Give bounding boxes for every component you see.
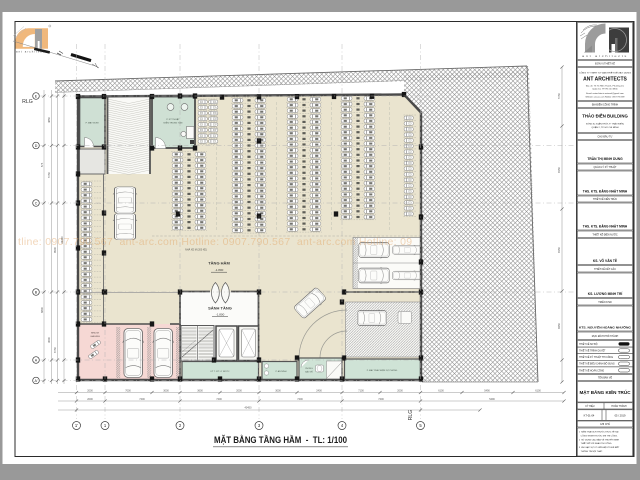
svg-text:2000: 2000 — [87, 389, 93, 392]
svg-text:TẦNG HẦM: TẦNG HẦM — [208, 261, 230, 266]
svg-text:TRẦN THỊ MINH DUNG: TRẦN THỊ MINH DUNG — [587, 157, 623, 161]
svg-text:RLG: RLG — [408, 410, 414, 421]
svg-text:P. MÁY PHÁT ĐIỆN DỰ PHÒNG: P. MÁY PHÁT ĐIỆN DỰ PHÒNG — [367, 369, 398, 372]
svg-text:2000: 2000 — [236, 389, 242, 392]
svg-text:TÊN BẢN VẼ: TÊN BẢN VẼ — [598, 377, 613, 380]
svg-text:KÝ HIỆU: KÝ HIỆU — [585, 405, 595, 408]
svg-text:5750: 5750 — [47, 172, 51, 178]
svg-text:D: D — [35, 144, 38, 148]
svg-text:RLG: RLG — [22, 99, 33, 105]
svg-text:8150: 8150 — [557, 167, 561, 173]
svg-text:2000: 2000 — [397, 389, 403, 392]
svg-text:4850: 4850 — [47, 117, 51, 123]
svg-text:MẶT BẰNG KIẾN TRÚC: MẶT BẰNG KIẾN TRÚC — [579, 388, 631, 395]
svg-text:6100: 6100 — [535, 389, 541, 392]
svg-text:A': A' — [34, 379, 37, 383]
svg-text:THÔNG TIN NỘI THẤT.: THÔNG TIN NỘI THẤT. — [579, 450, 603, 453]
svg-text:ĐỊA ĐIỂM CÔNG TRÌNH: ĐỊA ĐIỂM CÔNG TRÌNH — [592, 104, 619, 107]
svg-text:C: C — [35, 201, 38, 205]
svg-text:8450: 8450 — [557, 323, 561, 329]
svg-text:ĐƠN VỊ THIẾT KẾ: ĐƠN VỊ THIẾT KẾ — [595, 63, 615, 66]
svg-text:2400: 2400 — [316, 389, 322, 392]
svg-text:TRIỂN KHAI: TRIỂN KHAI — [598, 301, 612, 304]
svg-text:7400: 7400 — [216, 398, 222, 401]
svg-text:05 / 2019: 05 / 2019 — [615, 413, 626, 417]
svg-text:3 KHI GẶP. SỰ CỐ LIÊN HỆ KTS: 3 KHI GẶP. SỰ CỐ LIÊN HỆ KTS ĐỂ BIẾT — [579, 446, 620, 449]
svg-text:7400: 7400 — [297, 398, 303, 401]
svg-text:1 KIỂM TRA KÍCH THƯỚC THỰC TẾ: 1 KIỂM TRA KÍCH THƯỚC THỰC TẾ TẠI — [579, 431, 619, 434]
svg-text:NHÀ XE: NHÀ XE — [91, 332, 100, 335]
svg-text:CHỦ ĐẦU TƯ: CHỦ ĐẦU TƯ — [597, 136, 612, 139]
svg-text:THIẾT KẾ HOÀN CÔNG: THIẾT KẾ HOÀN CÔNG — [579, 369, 604, 372]
svg-text:MỤC ĐÍCH PHÁT HÀNH: MỤC ĐÍCH PHÁT HÀNH — [592, 335, 619, 338]
svg-text:7400: 7400 — [139, 398, 145, 401]
svg-text:8150: 8150 — [557, 247, 561, 253]
svg-text:40450: 40450 — [245, 407, 253, 410]
svg-text:ANT ARCHITECTS: ANT ARCHITECTS — [583, 77, 627, 83]
svg-text:3600: 3600 — [197, 389, 203, 392]
svg-text:24430: 24430 — [60, 236, 64, 244]
svg-text:PHÒNG: PHÒNG — [305, 367, 313, 370]
svg-text:GIA ĐÌNH: GIA ĐÌNH — [90, 335, 100, 338]
svg-text:P. AN NINH: P. AN NINH — [276, 370, 287, 373]
svg-text:2000: 2000 — [87, 398, 93, 401]
svg-text:7100: 7100 — [358, 389, 364, 392]
svg-text:THIẾT KẾ KẾT CẤU: THIẾT KẾ KẾT CẤU — [594, 268, 616, 271]
svg-text:THIẾT KẾ TRÌNH DUYỆT: THIẾT KẾ TRÌNH DUYỆT — [579, 350, 606, 353]
svg-text:ĐIỆN TRUNG TÂM: ĐIỆN TRUNG TÂM — [164, 122, 183, 125]
svg-text:THS. KTS. ĐẶNG NHẬT MINH: THS. KTS. ĐẶNG NHẬT MINH — [583, 189, 628, 194]
svg-text:P. KỸ THUẬT: P. KỸ THUẬT — [166, 118, 180, 121]
svg-text:SỐNG B, XUÂN THỦY, P. THẢO ĐIỀ: SỐNG B, XUÂN THỦY, P. THẢO ĐIỀN, — [586, 123, 625, 126]
svg-text:THIẾT KẾ KỸ THUẬT THI CÔNG: THIẾT KẾ KỸ THUẬT THI CÔNG — [579, 356, 613, 359]
svg-text:THIẾT KẾ ĐIỆN NƯỚC: THIẾT KẾ ĐIỆN NƯỚC — [592, 233, 618, 236]
svg-text:1': 1' — [75, 423, 78, 428]
svg-text:-1.800: -1.800 — [215, 268, 224, 272]
svg-text:6800: 6800 — [40, 307, 44, 313]
svg-text:THIẾT KẾ VỚI NHAU THI CÔNG.: THIẾT KẾ VỚI NHAU THI CÔNG. — [579, 442, 612, 445]
svg-text:7400: 7400 — [378, 398, 384, 401]
svg-text:3000: 3000 — [275, 389, 281, 392]
svg-text:2 SỬ DỤNG CÁC BẢN VẼ THUYẾT M: 2 SỬ DỤNG CÁC BẢN VẼ THUYẾT MINH — [579, 438, 620, 441]
svg-text:BẢO VỆ: BẢO VỆ — [305, 370, 313, 373]
svg-text:Quận 10, TP. Hồ Chí Minh: Quận 10, TP. Hồ Chí Minh — [592, 88, 618, 91]
svg-text:SẢNH TẦNG: SẢNH TẦNG — [208, 306, 232, 311]
svg-text:KTS. NGUYỄN HOÀNG NHƯỠNG: KTS. NGUYỄN HOÀNG NHƯỠNG — [579, 325, 632, 330]
svg-text:THIẾT KẾ SƠ BỘ: THIẾT KẾ SƠ BỘ — [579, 343, 598, 346]
svg-text:KT-01-04: KT-01-04 — [584, 413, 595, 417]
svg-text:5750: 5750 — [557, 93, 561, 99]
svg-text:THIẾT KẾ ĐIỀU CHỈNH BỔ SUNG: THIẾT KẾ ĐIỀU CHỈNH BỔ SUNG — [579, 363, 615, 366]
svg-text:5490: 5490 — [484, 389, 490, 392]
svg-text:NHÀ XE M (200 XE): NHÀ XE M (200 XE) — [185, 249, 207, 252]
svg-text:3600: 3600 — [47, 337, 51, 343]
svg-text:-1.800: -1.800 — [216, 313, 225, 317]
svg-text:THẢO ĐIỀN BUILDING: THẢO ĐIỀN BUILDING — [582, 114, 628, 119]
svg-text:KỸ T. XỬ LÝ NƯỚC: KỸ T. XỬ LÝ NƯỚC — [211, 370, 230, 373]
svg-text:6750: 6750 — [53, 347, 57, 353]
svg-text:MẶT BẰNG TẦNG HẦM - TL: 1/10: MẶT BẰNG TẦNG HẦM - TL: 1/100 — [214, 435, 347, 446]
svg-text:GHI CHÚ: GHI CHÚ — [600, 423, 610, 426]
svg-text:CÔNG TY TNHH TƯ VẤN THIẾT KẾ X: CÔNG TY TNHH TƯ VẤN THIẾT KẾ XÂY DỰNG — [579, 72, 631, 75]
svg-text:Địa chỉ: 73 Tô Hiến Thành, Phư: Địa chỉ: 73 Tô Hiến Thành, Phường 13, — [586, 85, 625, 88]
svg-text:575: 575 — [40, 162, 44, 167]
svg-text:HOÀN THÀNH: HOÀN THÀNH — [611, 405, 626, 408]
svg-text:Website: ant-arc.com Hotline: Website: ant-arc.com Hotline: 0907 790 3… — [586, 96, 626, 99]
svg-text:7000: 7000 — [125, 389, 131, 392]
svg-text:QUẢN LÝ KỸ THUẬT: QUẢN LÝ KỸ THUẬT — [594, 166, 617, 169]
svg-text:3000: 3000 — [163, 389, 169, 392]
svg-text:Email: antarchitects.network@g: Email: antarchitects.network@gmail.com — [586, 92, 624, 95]
svg-text:CÔNG TRÌNH TRƯỚC KHI THI CÔNG.: CÔNG TRÌNH TRƯỚC KHI THI CÔNG. — [579, 434, 618, 437]
svg-text:5490: 5490 — [489, 398, 495, 401]
svg-text:THS. KTS. ĐẶNG NHẬT MINH: THS. KTS. ĐẶNG NHẬT MINH — [583, 224, 628, 229]
svg-text:8900: 8900 — [53, 247, 57, 253]
svg-text:THIẾT KẾ KIẾN TRÚC: THIẾT KẾ KIẾN TRÚC — [593, 198, 617, 201]
svg-text:QUẬN 2, TP. HỒ CHÍ MINH: QUẬN 2, TP. HỒ CHÍ MINH — [592, 126, 619, 129]
svg-text:ant architects: ant architects — [582, 54, 628, 58]
svg-text:P. MÁY BƠM: P. MÁY BƠM — [86, 122, 99, 125]
svg-text:6100: 6100 — [438, 389, 444, 392]
svg-text:tline: 0907.790.567 ant-arc.c: tline: 0907.790.567 ant-arc.com Hotline:… — [18, 236, 412, 248]
svg-text:KS. VÕ VĂN TỀ: KS. VÕ VĂN TỀ — [593, 258, 618, 263]
svg-text:KS. LƯƠNG MINH TRÍ: KS. LƯƠNG MINH TRÍ — [588, 291, 623, 296]
